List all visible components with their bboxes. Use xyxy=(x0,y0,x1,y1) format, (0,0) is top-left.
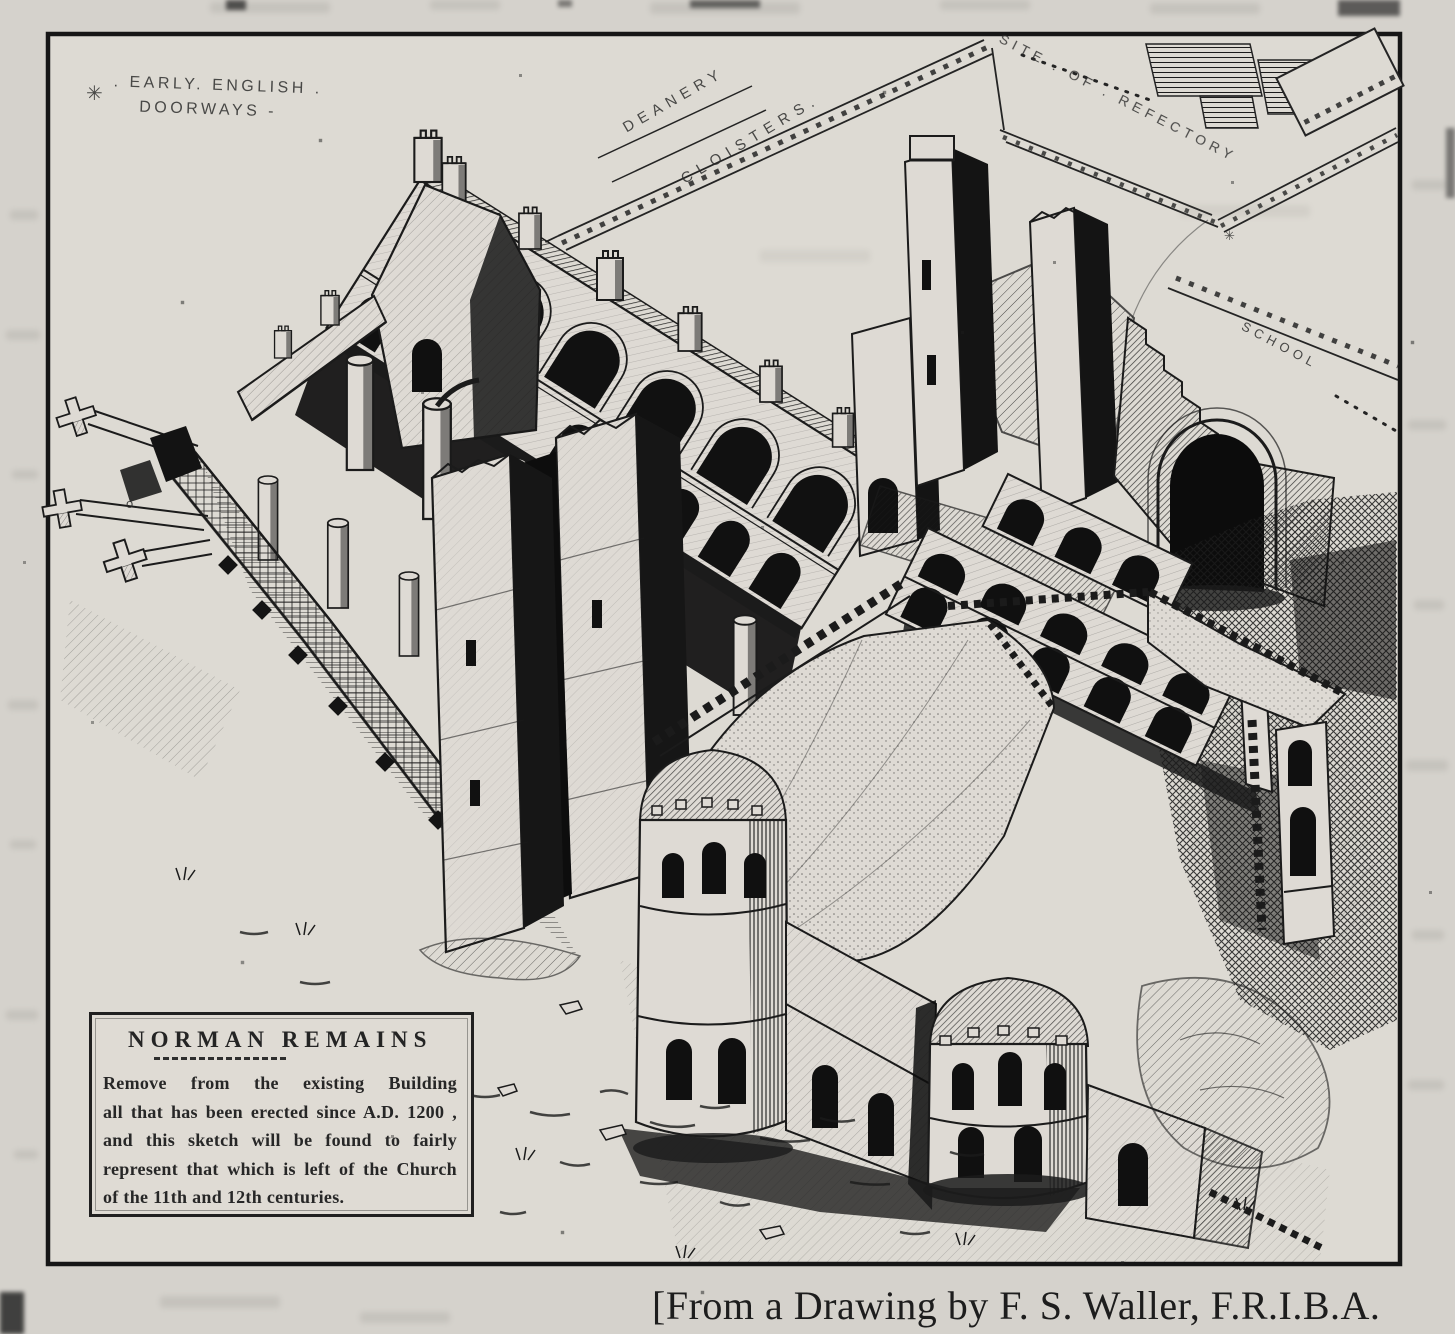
legend-line: of the 11th and 12th centuries. xyxy=(103,1183,457,1212)
plan-mark-asterisk: ✳ xyxy=(1224,228,1235,243)
ink-smudge xyxy=(226,0,246,10)
ink-smudge xyxy=(558,0,572,7)
ink-smudge xyxy=(0,1292,24,1334)
scanned-book-page: ✳ . EARLY. ENGLISH . DOORWAYS - DEANERY … xyxy=(0,0,1455,1334)
legend-line: represent that which is left of the Chur… xyxy=(103,1155,457,1184)
ink-smudge xyxy=(1338,0,1400,16)
legend-line: Remove from the existing Building xyxy=(103,1069,457,1098)
early-english-marker-icon: ✳ xyxy=(86,83,103,105)
legend-line: and this sketch will be found to fairly xyxy=(103,1126,457,1155)
ink-smudge xyxy=(690,0,760,8)
legend-title: NORMAN REMAINS xyxy=(128,1027,471,1053)
figure-caption: [From a Drawing by F. S. Waller, F.R.I.B… xyxy=(652,1282,1380,1329)
legend-box: NORMAN REMAINS Remove from the existing … xyxy=(89,1012,474,1217)
legend-line: all that has been erected since A.D. 120… xyxy=(103,1098,457,1127)
plan-mark-o: o. xyxy=(126,496,141,511)
ink-smudge xyxy=(1446,128,1455,198)
legend-rule-divider xyxy=(154,1057,286,1060)
paper-speckles xyxy=(0,0,1,1)
